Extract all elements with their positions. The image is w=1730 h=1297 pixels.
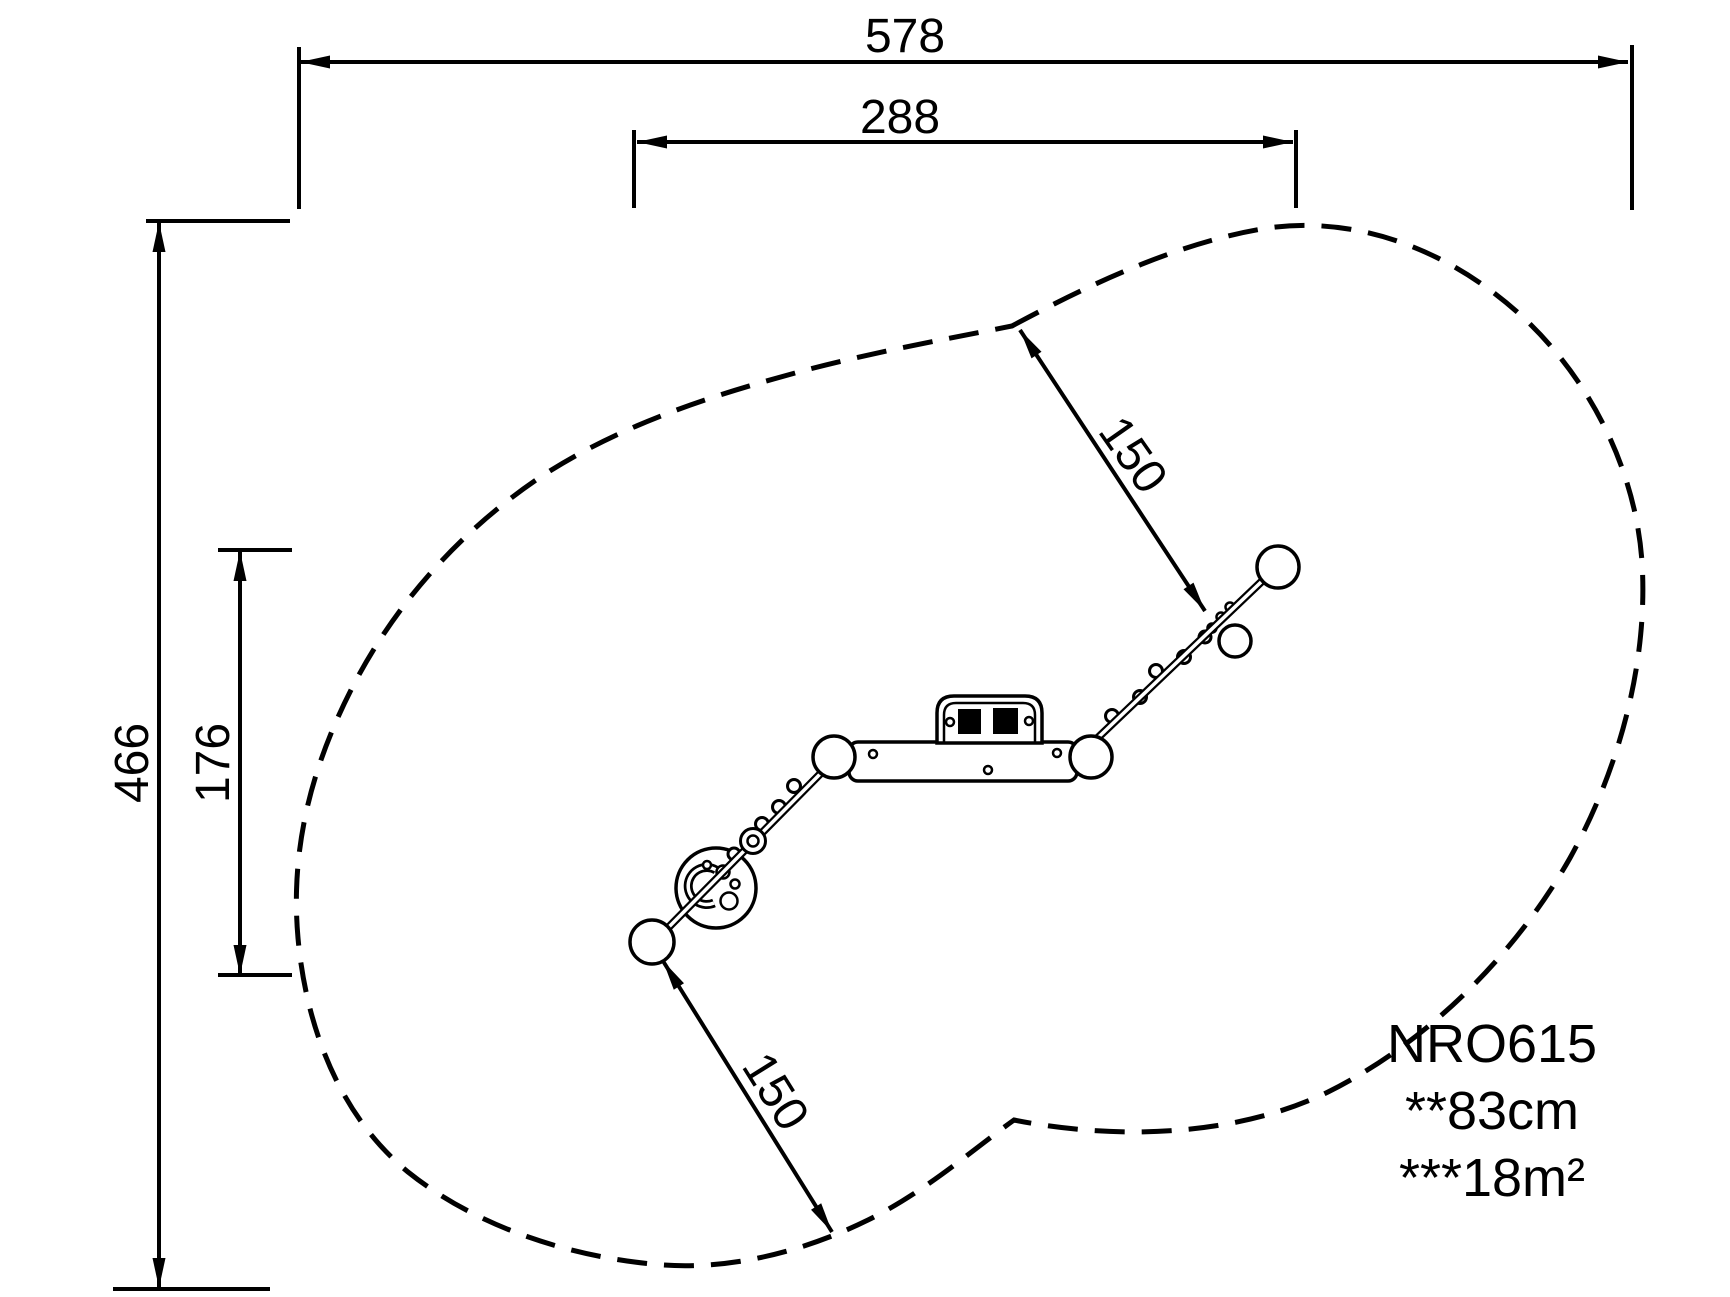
product-safety-area: ***18m² bbox=[1399, 1148, 1585, 1208]
dim-label-overall-depth: 466 bbox=[106, 723, 159, 803]
dim-label-clearance-lower: 150 bbox=[731, 1044, 818, 1140]
disc-hole bbox=[721, 893, 738, 910]
dim-label-inner-width: 288 bbox=[860, 91, 940, 144]
panel-screw bbox=[946, 718, 954, 726]
arrowhead bbox=[663, 961, 684, 990]
product-note: NRO615 **83cm ***18m² bbox=[1387, 1014, 1597, 1208]
disc-hole bbox=[703, 861, 711, 869]
arrowhead bbox=[811, 1203, 832, 1232]
disc-hole bbox=[731, 880, 740, 889]
dim-label-overall-width: 578 bbox=[865, 10, 945, 63]
upper-pole-core bbox=[1085, 564, 1280, 750]
arrowhead bbox=[300, 56, 330, 69]
dim-label-clearance-upper: 150 bbox=[1088, 407, 1177, 503]
drawing-sheet: 578 288 466 176 150 150 NRO615 **83cm **… bbox=[0, 0, 1730, 1297]
arrowhead bbox=[1598, 56, 1628, 69]
beam bbox=[849, 742, 1077, 781]
product-code: NRO615 bbox=[1387, 1014, 1597, 1074]
arrowhead bbox=[234, 551, 247, 581]
mid-ball-upper bbox=[1219, 625, 1251, 657]
beam-screw bbox=[1053, 749, 1061, 757]
beam-ball-left bbox=[813, 736, 855, 778]
end-ball-upper bbox=[1257, 546, 1299, 588]
dim-label-inner-depth: 176 bbox=[187, 723, 240, 803]
beam-ball-right bbox=[1070, 736, 1112, 778]
pole-knob-center bbox=[748, 836, 759, 847]
panel-window bbox=[958, 709, 981, 734]
arrowhead bbox=[1263, 136, 1293, 149]
product-fall-height: **83cm bbox=[1405, 1081, 1579, 1141]
beam-screw bbox=[984, 766, 992, 774]
arrowhead bbox=[637, 136, 667, 149]
panel-screw bbox=[1025, 717, 1033, 725]
plan-drawing: 578 288 466 176 150 150 NRO615 **83cm **… bbox=[0, 0, 1730, 1297]
arrowhead bbox=[153, 1258, 166, 1288]
equipment-group bbox=[630, 546, 1299, 964]
panel-window bbox=[993, 708, 1018, 734]
arrowhead bbox=[234, 945, 247, 975]
end-ball-lower bbox=[630, 920, 674, 964]
beam-screw bbox=[869, 750, 877, 758]
arrowhead bbox=[153, 222, 166, 252]
